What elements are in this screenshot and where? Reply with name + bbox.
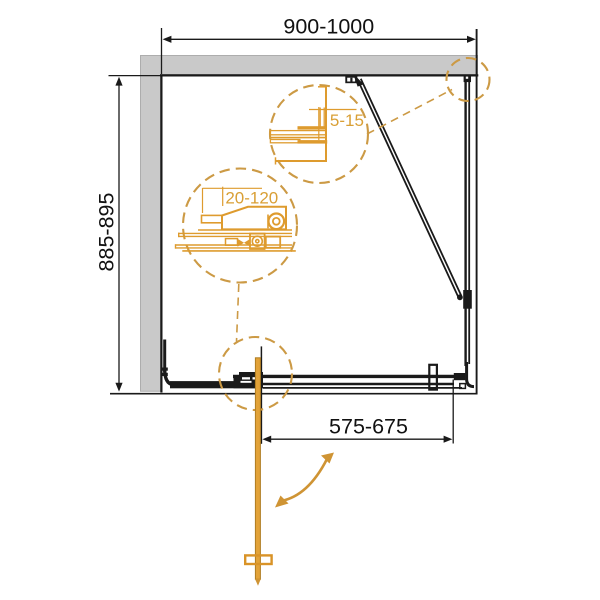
svg-text:20-120: 20-120 [225,189,278,208]
svg-text:900-1000: 900-1000 [283,14,374,38]
svg-text:5-15: 5-15 [330,111,364,130]
svg-text:885-895: 885-895 [95,193,119,272]
svg-text:575-675: 575-675 [329,414,408,438]
